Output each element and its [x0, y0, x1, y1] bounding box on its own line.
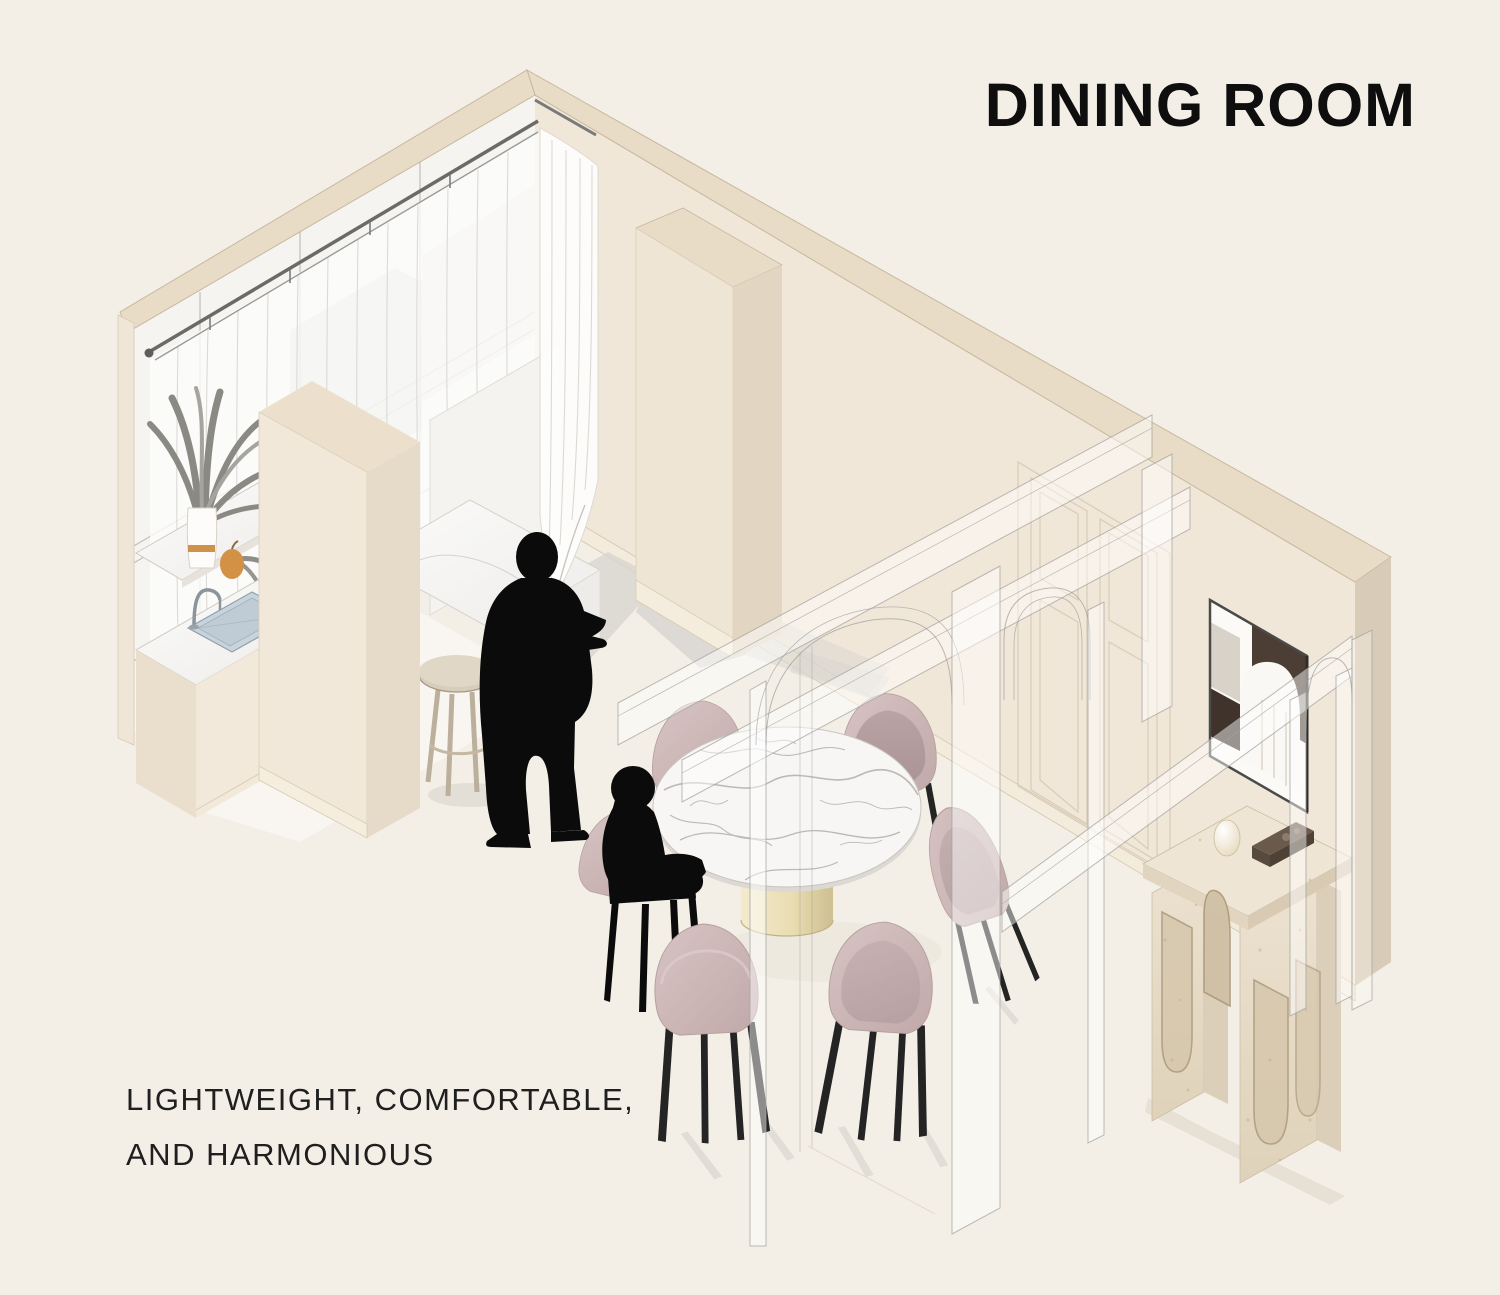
vase-white: [187, 508, 216, 568]
caption-line-1: LIGHTWEIGHT, COMFORTABLE,: [126, 1072, 634, 1127]
window-wall-left-jamb: [118, 315, 134, 745]
wall-pier: [636, 208, 782, 658]
console-lamp: [1214, 820, 1240, 856]
console-table: [1143, 806, 1352, 1205]
caption-line-2: AND HARMONIOUS: [126, 1127, 634, 1182]
kitchen-tall-cabinet: [259, 381, 420, 838]
page-title: DINING ROOM: [985, 70, 1416, 140]
caption-text: LIGHTWEIGHT, COMFORTABLE, AND HARMONIOUS: [126, 1072, 634, 1182]
poster-canvas: DINING ROOM LIGHTWEIGHT, COMFORTABLE, AN…: [0, 0, 1500, 1295]
floor-cut-edge: [808, 1146, 935, 1214]
